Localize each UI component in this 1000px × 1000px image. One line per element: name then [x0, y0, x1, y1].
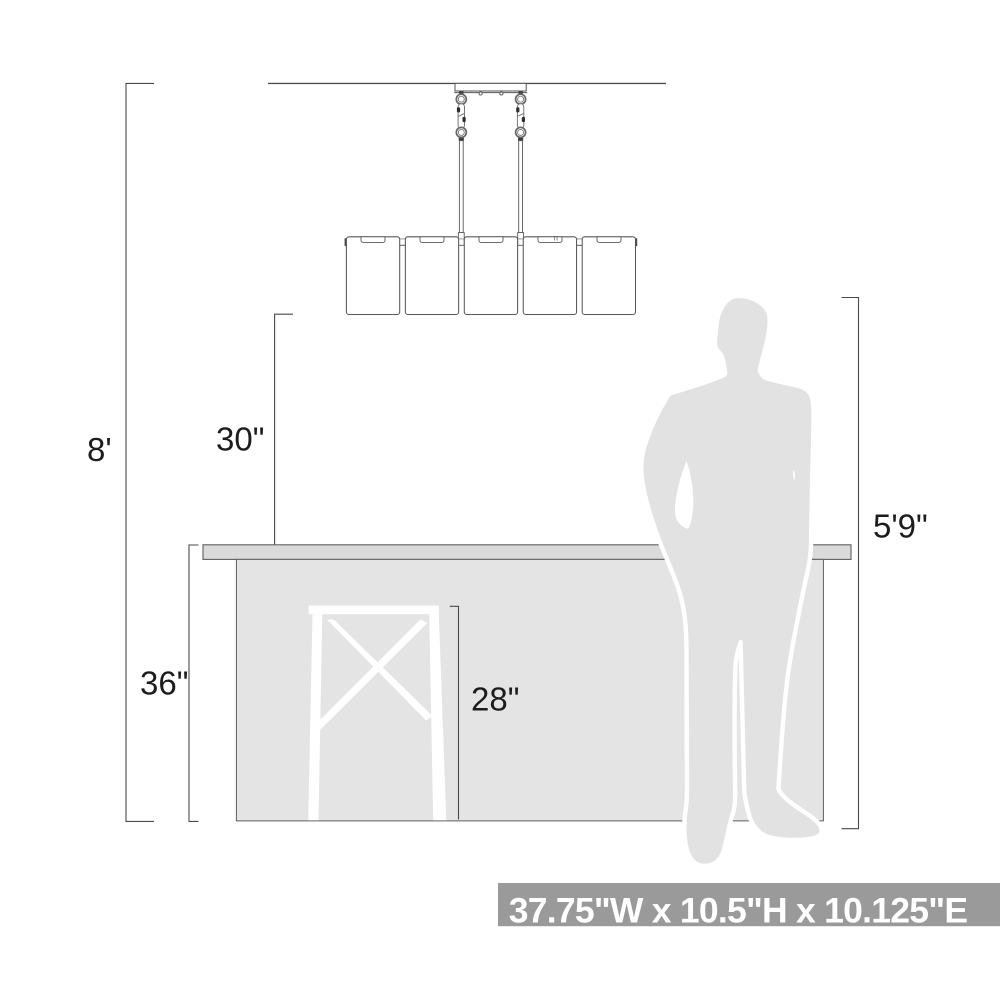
svg-text:5'9": 5'9": [873, 508, 928, 545]
svg-text:n: n: [554, 234, 558, 243]
svg-text:30": 30": [216, 421, 264, 458]
svg-text:28": 28": [471, 681, 519, 718]
svg-text:36": 36": [140, 665, 188, 702]
svg-text:8': 8': [87, 431, 112, 468]
svg-text:37.75"W x 10.5"H x 10.125"E: 37.75"W x 10.5"H x 10.125"E: [509, 891, 968, 931]
